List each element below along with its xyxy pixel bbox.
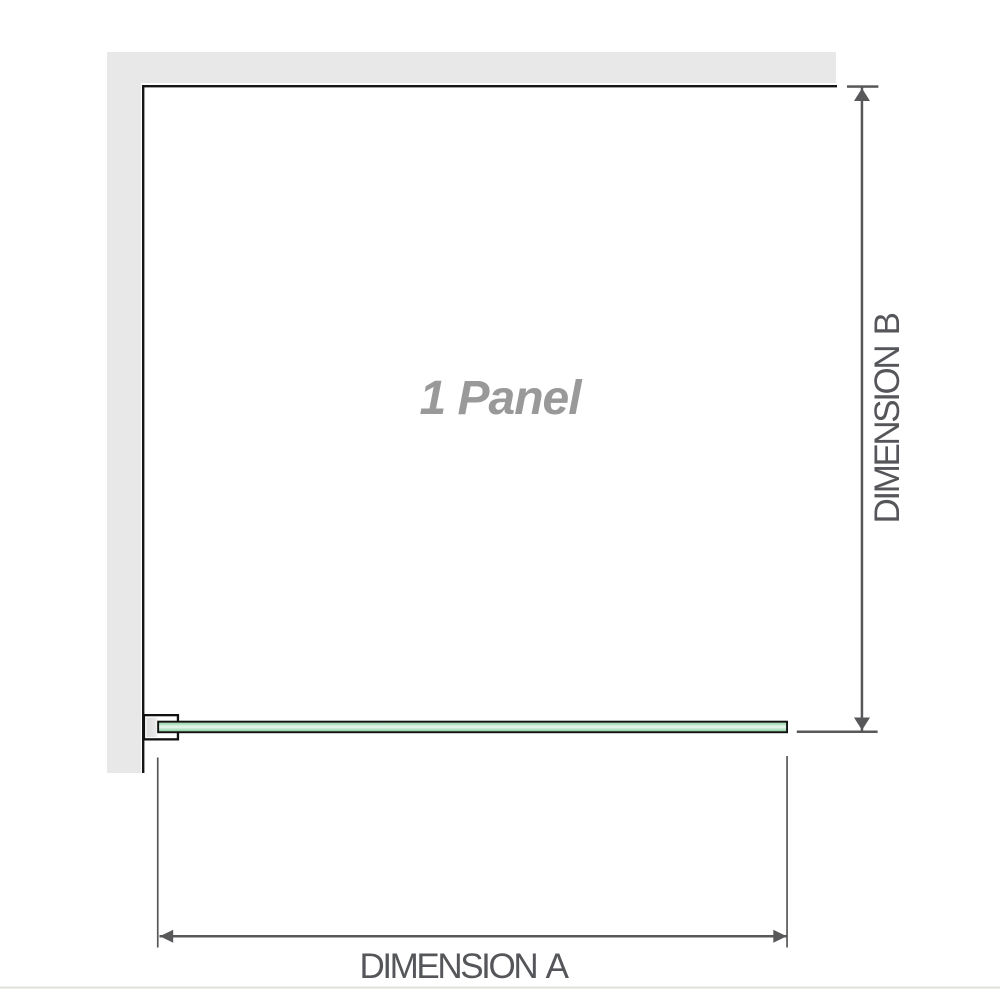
svg-text:DIMENSION A: DIMENSION A [359,947,569,986]
svg-text:DIMENSION B: DIMENSION B [868,313,907,523]
svg-text:1 Panel: 1 Panel [419,372,583,425]
